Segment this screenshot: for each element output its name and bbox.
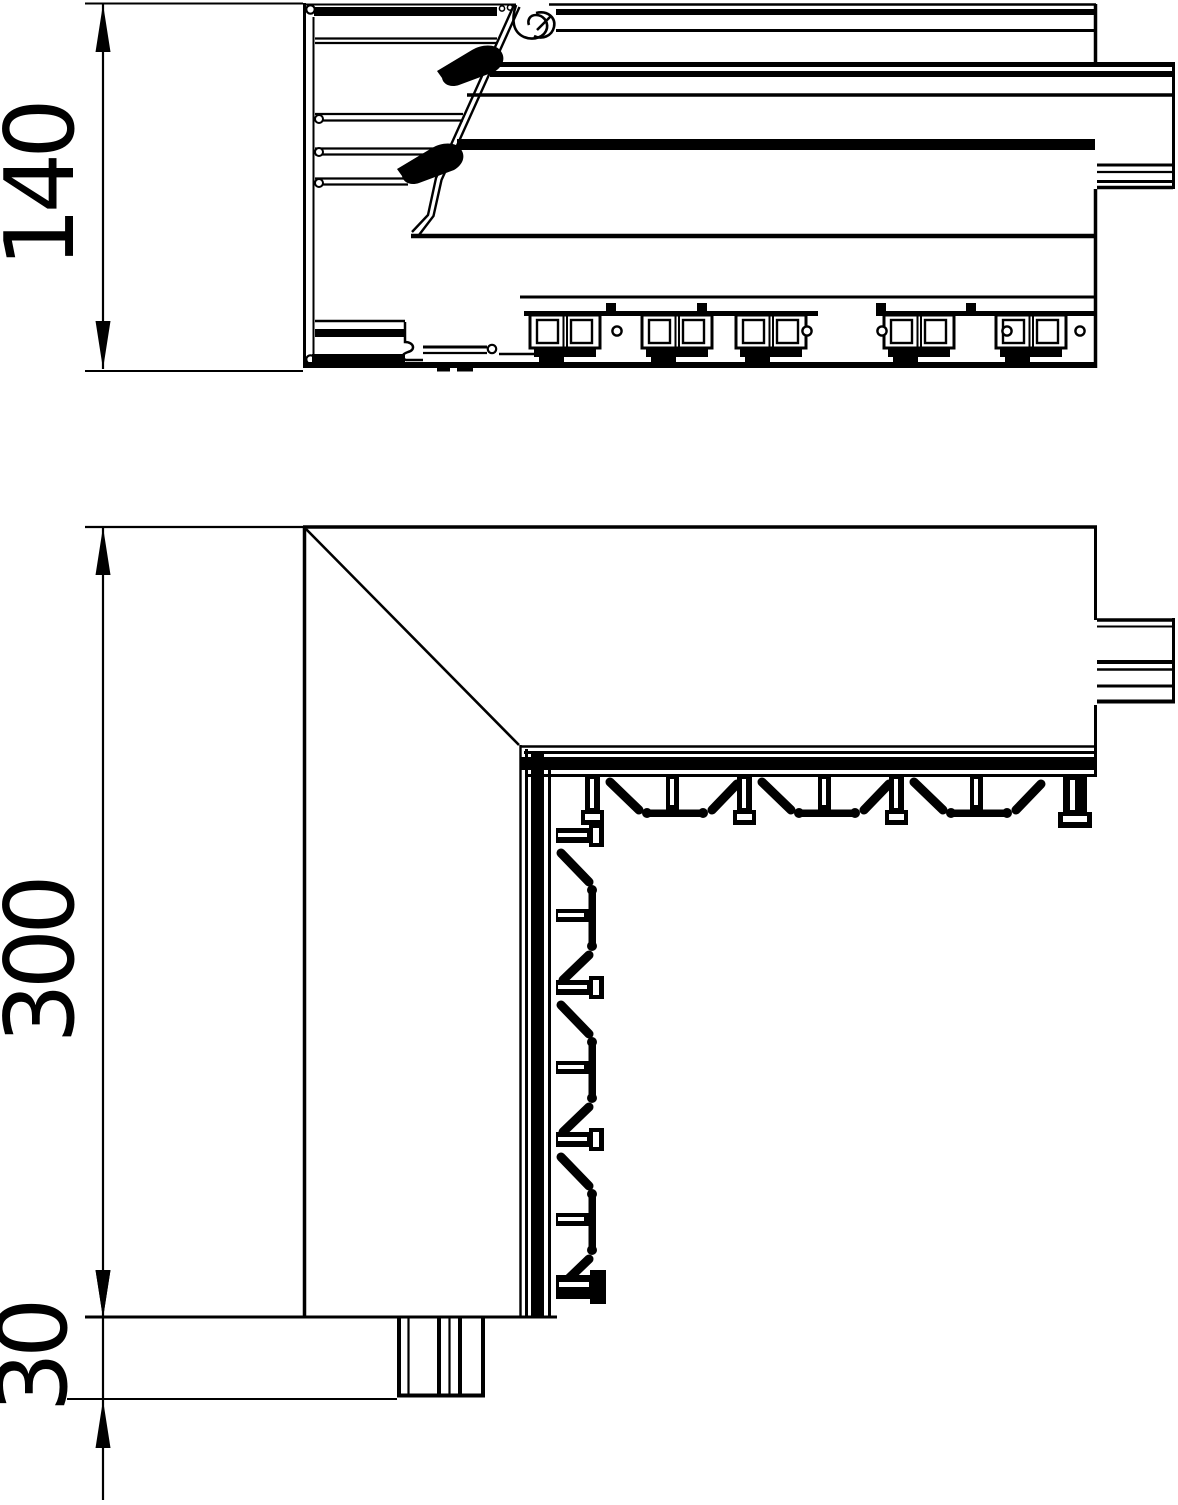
screw-port-top: [306, 5, 314, 13]
wall-band-vertical: [521, 745, 550, 1317]
section-view: [303, 3, 1175, 372]
dim-30: 30: [0, 1270, 397, 1500]
section-spigot: [1097, 63, 1174, 189]
arrowhead-up: [96, 1400, 111, 1448]
dimensions: 140 300 30: [0, 4, 397, 1501]
arrowhead-up: [96, 527, 111, 575]
plan-mitre-diagonal: [306, 529, 519, 745]
arrowhead-down: [96, 321, 111, 369]
plan-view: [85, 527, 1175, 1396]
dimension-label-140: 140: [0, 104, 96, 268]
dim-140: 140: [0, 4, 303, 372]
dimension-label-30: 30: [0, 1303, 89, 1412]
clips-vertical: [556, 824, 606, 1304]
plan-spigot-bottom: [397, 1318, 485, 1396]
plan-spigot-right: [1097, 618, 1175, 703]
arrowhead-up: [96, 4, 111, 52]
arrowhead-down: [96, 1270, 111, 1318]
latch-hook-upper: [437, 46, 503, 87]
device-mount-strip: [520, 297, 1094, 365]
technical-drawing: 140 300 30: [0, 0, 1178, 1500]
clips-horizontal: [581, 777, 1092, 828]
drawing-canvas: 140 300 30: [0, 0, 1178, 1500]
dimension-label-300: 300: [0, 880, 96, 1044]
wall-band-horizontal: [520, 747, 1096, 776]
dim-300: 300: [0, 527, 303, 1318]
cover-lip-curl: [513, 5, 554, 39]
